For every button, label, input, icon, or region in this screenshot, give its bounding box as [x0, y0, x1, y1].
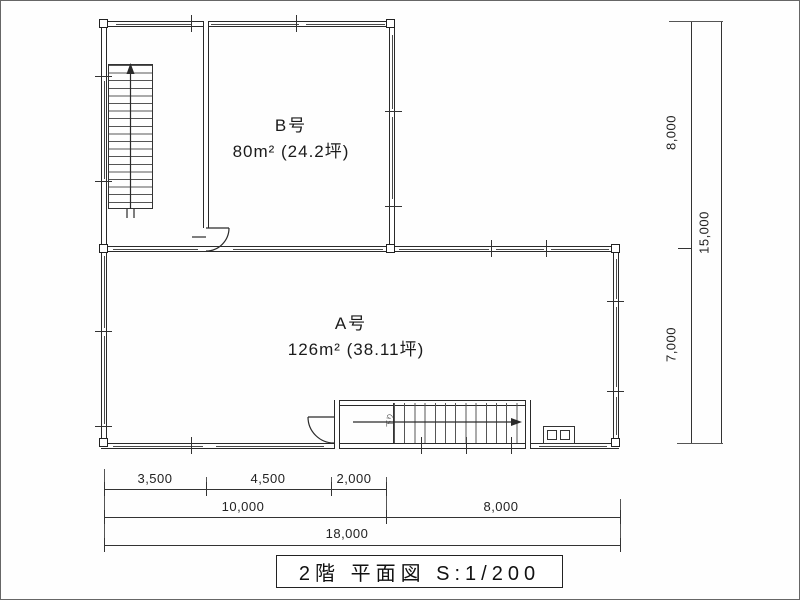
up-arrow-icon	[127, 63, 135, 74]
stair-start-mark	[127, 209, 134, 218]
doors-and-arrows-layer	[1, 1, 800, 600]
door-swing-arc	[308, 417, 334, 443]
floor-plan-sheet: 下り B号 80m² (24.2坪) A号 126m² (38.11坪)	[0, 0, 800, 600]
right-arrow-icon	[511, 418, 522, 426]
door-swing-arc	[206, 228, 229, 251]
